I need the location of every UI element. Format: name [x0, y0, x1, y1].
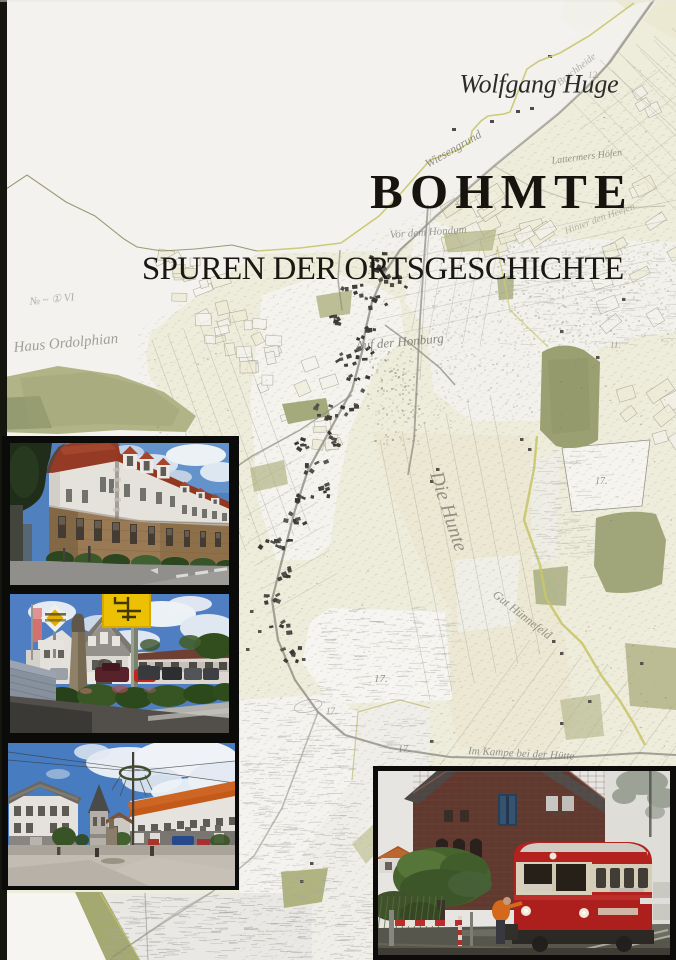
- svg-text:BOHMTE: BOHMTE: [370, 164, 634, 219]
- svg-text:17.: 17.: [374, 673, 388, 685]
- svg-text:SPUREN DER ORTSGESCHICHTE: SPUREN DER ORTSGESCHICHTE: [142, 251, 624, 287]
- svg-text:Wolfgang Huge: Wolfgang Huge: [460, 70, 619, 99]
- svg-text:11.: 11.: [610, 340, 621, 350]
- svg-text:17.: 17.: [595, 476, 608, 487]
